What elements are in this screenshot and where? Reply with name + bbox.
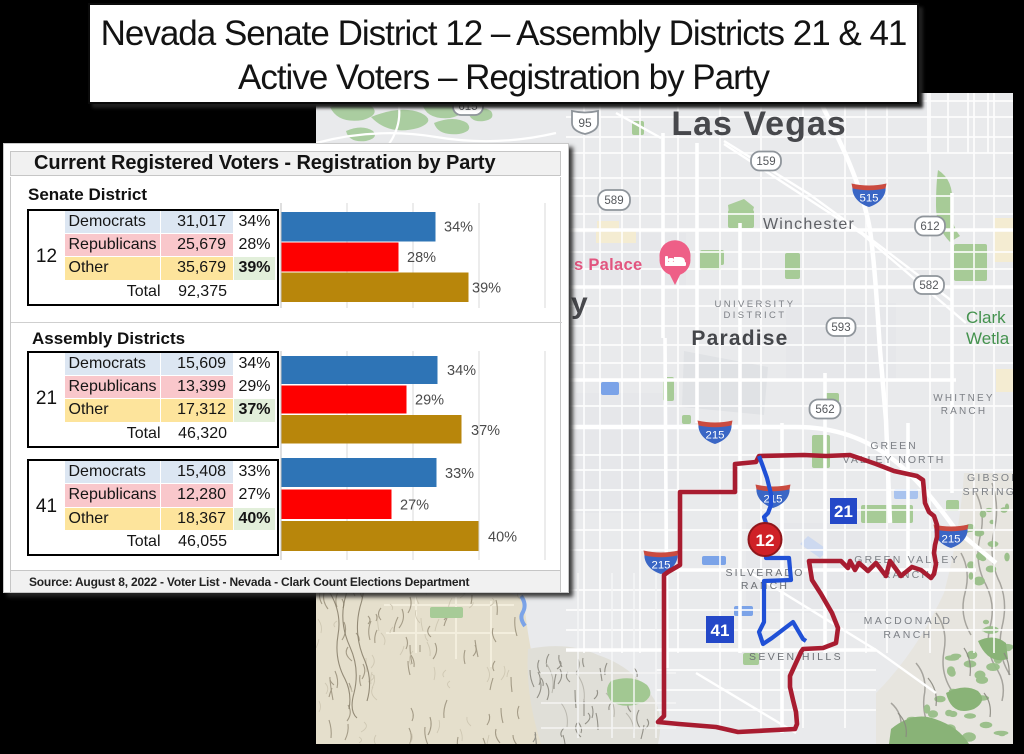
svg-text:Winchester: Winchester (763, 216, 855, 233)
svg-text:RANCH: RANCH (941, 406, 988, 417)
svg-text:159: 159 (756, 156, 775, 168)
svg-text:UNIVERSITY: UNIVERSITY (714, 299, 795, 310)
svg-text:37%: 37% (471, 423, 500, 439)
svg-text:GREEN VALLEY: GREEN VALLEY (854, 554, 960, 566)
svg-text:215: 215 (941, 534, 960, 546)
svg-text:39%: 39% (472, 281, 501, 297)
svg-text:GIBSON: GIBSON (967, 472, 1013, 484)
svg-text:12: 12 (756, 531, 775, 550)
svg-text:RANCH: RANCH (883, 629, 932, 641)
svg-text:21: 21 (834, 502, 853, 521)
svg-text:40%: 40% (488, 530, 517, 546)
svg-text:y: y (571, 287, 588, 320)
svg-text:582: 582 (919, 280, 938, 292)
svg-text:28%: 28% (407, 250, 436, 266)
svg-text:562: 562 (815, 404, 834, 416)
svg-text:s Palace: s Palace (574, 256, 642, 274)
svg-text:29%: 29% (415, 393, 444, 409)
svg-text:Las Vegas: Las Vegas (671, 105, 846, 143)
svg-text:Paradise: Paradise (691, 327, 788, 350)
svg-text:34%: 34% (447, 363, 476, 379)
svg-text:Wetla: Wetla (966, 329, 1010, 348)
svg-text:DISTRICT: DISTRICT (723, 310, 786, 321)
svg-text:WHITNEY: WHITNEY (933, 393, 995, 404)
svg-text:95: 95 (578, 116, 592, 130)
svg-text:GREEN: GREEN (870, 440, 917, 452)
svg-text:MACDONALD: MACDONALD (864, 615, 953, 627)
svg-text:27%: 27% (400, 498, 429, 514)
svg-text:SPRINGS: SPRINGS (963, 486, 1013, 498)
svg-text:515: 515 (859, 193, 878, 205)
svg-text:41: 41 (711, 621, 730, 640)
svg-text:Clark: Clark (966, 308, 1006, 327)
svg-text:593: 593 (831, 322, 850, 334)
svg-text:612: 612 (920, 221, 939, 233)
svg-text:34%: 34% (444, 220, 473, 236)
svg-text:33%: 33% (445, 466, 474, 482)
svg-text:215: 215 (705, 430, 724, 442)
svg-text:589: 589 (604, 195, 623, 207)
